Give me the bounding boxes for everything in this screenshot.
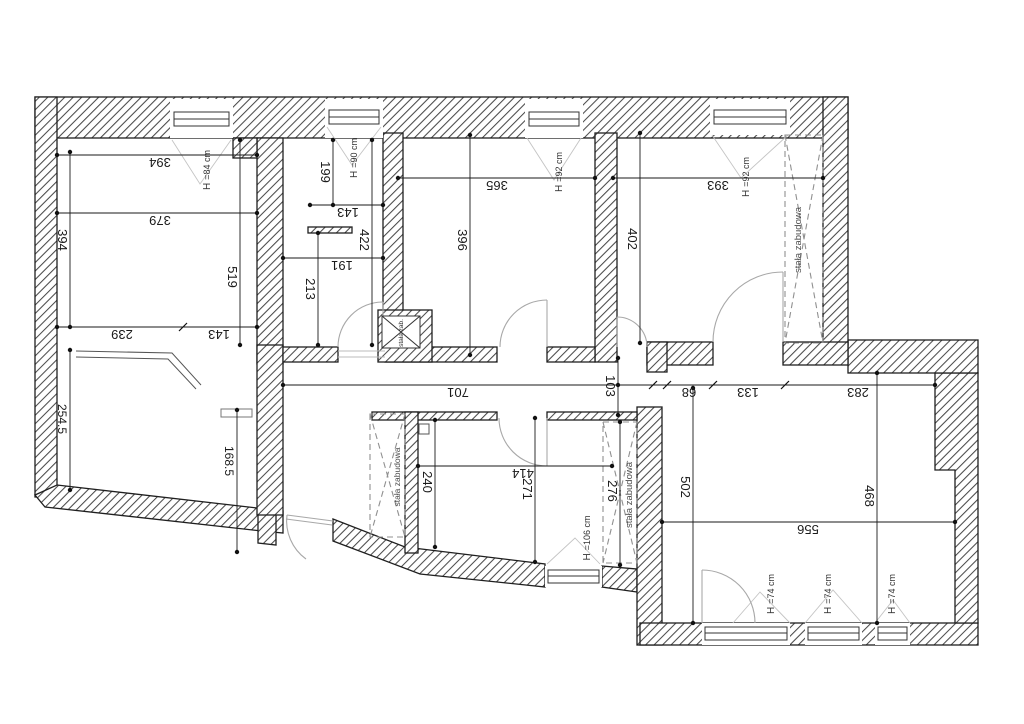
floor-plan-svg: 394 379 394 519 239 143 199 143 422 191 …	[0, 0, 1024, 724]
floor-plan-page: 394 379 394 519 239 143 199 143 422 191 …	[0, 0, 1024, 724]
dim-room1-left: 394	[55, 229, 70, 251]
window-label-w1: H=84 cm	[202, 150, 213, 190]
dim-corridor-length: 701	[447, 385, 469, 400]
dim-hall-width-upper: 143	[337, 205, 359, 220]
bm-column	[419, 424, 429, 434]
wall-entry-stub	[258, 511, 276, 545]
window-w6	[702, 623, 790, 645]
window-w4	[710, 99, 790, 135]
wall-tr-right	[823, 97, 848, 345]
window-label-w6: H=74 cm	[766, 574, 777, 614]
window-w5	[545, 566, 602, 587]
label-closet: stała zab.	[398, 319, 405, 347]
label-wardrobe-left: stała zabudowa	[392, 447, 402, 506]
wall-left	[35, 97, 57, 497]
dim-corridor-seg3: 283	[847, 385, 869, 400]
wall-junction-block	[647, 342, 667, 372]
dim-room4-right: 168.5	[222, 446, 236, 476]
label-wardrobe-right: stała zabudowa	[624, 461, 635, 528]
dim-room5-middle: 271	[520, 478, 535, 500]
wall-divider-bm-br	[637, 407, 662, 645]
dim-corridor-seg1: 68	[682, 385, 696, 400]
dim-room1-right: 519	[225, 266, 240, 288]
dim-room5-right: 276	[605, 480, 620, 502]
dim-room6-right: 468	[862, 485, 877, 507]
dim-room5-left: 240	[420, 471, 435, 493]
wall-bl-column	[257, 345, 283, 515]
dim-room3-width: 393	[707, 178, 729, 193]
dim-room1-bottom-left: 239	[111, 327, 133, 342]
wall-corridor-top-c	[547, 347, 595, 362]
window-label-w4: H=92 cm	[741, 157, 752, 197]
window-label-w7: H=74 cm	[823, 574, 834, 614]
wall-room1-hall-column	[257, 138, 283, 364]
window-w3	[525, 99, 583, 138]
wall-bm-bottom-right	[602, 566, 637, 592]
window-w2	[325, 99, 383, 138]
window-w8	[875, 623, 910, 645]
dim-room1-inner: 379	[149, 213, 171, 228]
wall-tr-east-band	[848, 340, 978, 373]
window-label-w3: H=92 cm	[554, 152, 565, 192]
window-w1	[170, 99, 233, 138]
dim-corridor-width: 103	[603, 375, 618, 397]
wall-corridor-bottom-b	[547, 412, 637, 420]
window-label-w2: H=90 cm	[349, 138, 360, 178]
wall-corridor-top-a	[283, 347, 338, 362]
dim-room2-height: 396	[455, 229, 470, 251]
dim-hall-upper: 199	[318, 161, 333, 183]
dim-room2-width: 365	[486, 178, 508, 193]
wall-hall-stub	[308, 227, 352, 233]
window-label-w5: H=106 cm	[582, 515, 593, 560]
label-wardrobe-room3: stała zabudowa	[793, 206, 804, 273]
dim-room3-height: 402	[625, 228, 640, 250]
wall-bm-left	[405, 412, 418, 553]
window-label-w8: H=74 cm	[887, 574, 898, 614]
dim-room1-top: 394	[149, 155, 171, 170]
dim-hall-full: 422	[357, 229, 372, 251]
dim-hall-width-lower: 191	[331, 258, 353, 273]
wall-tr-bottom-b	[783, 342, 848, 365]
window-w7	[805, 623, 862, 645]
dim-hall-lower: 213	[303, 278, 318, 300]
dim-room1-bottom-right: 143	[208, 327, 230, 342]
dim-room6-width: 556	[797, 522, 819, 537]
dim-corridor-seg2: 133	[737, 385, 759, 400]
dim-room6-left: 502	[678, 476, 693, 498]
dim-room4-left: 254.5	[55, 404, 69, 434]
wall-mid-right	[595, 133, 617, 362]
